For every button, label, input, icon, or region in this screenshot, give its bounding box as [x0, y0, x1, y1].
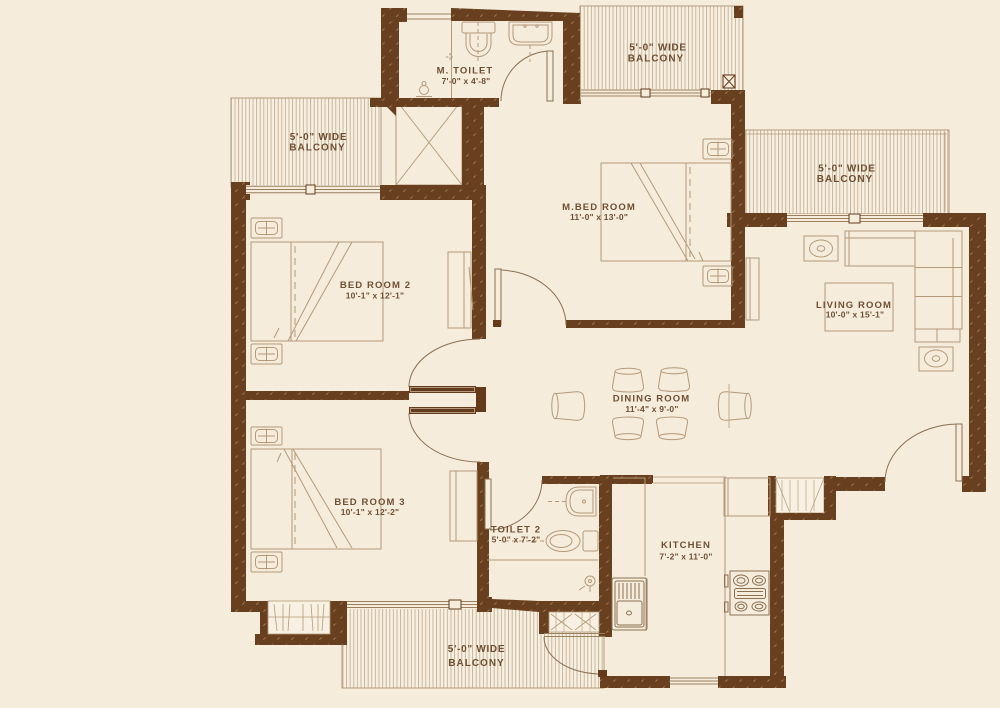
svg-text:BALCONY: BALCONY: [448, 658, 504, 669]
svg-text:BALCONY: BALCONY: [289, 143, 345, 154]
svg-text:5'-0" WIDE: 5'-0" WIDE: [448, 644, 505, 655]
svg-text:5'-0" WIDE: 5'-0" WIDE: [818, 164, 875, 175]
svg-text:KITCHEN: KITCHEN: [661, 540, 711, 551]
svg-text:11'-0" x 13'-0": 11'-0" x 13'-0": [570, 212, 628, 222]
svg-text:7'-2" x 11'-0": 7'-2" x 11'-0": [659, 552, 712, 562]
svg-text:BED ROOM 2: BED ROOM 2: [340, 280, 411, 291]
svg-text:M. TOILET: M. TOILET: [437, 66, 494, 77]
svg-text:5'-0" WIDE: 5'-0" WIDE: [290, 132, 347, 143]
svg-text:5'-0" WIDE: 5'-0" WIDE: [629, 43, 686, 54]
svg-text:10'-1" x 12'-1": 10'-1" x 12'-1": [346, 291, 405, 301]
svg-text:11'-4" x 9'-0": 11'-4" x 9'-0": [625, 404, 678, 414]
svg-text:10'-1" x 12'-2": 10'-1" x 12'-2": [341, 507, 400, 517]
svg-text:10'-0" x 15'-1": 10'-0" x 15'-1": [826, 310, 885, 320]
svg-text:DINING ROOM: DINING ROOM: [613, 394, 691, 405]
svg-text:7'-0" x 4'-8": 7'-0" x 4'-8": [442, 76, 491, 86]
svg-text:BALCONY: BALCONY: [817, 174, 873, 185]
svg-text:BALCONY: BALCONY: [628, 54, 684, 65]
svg-text:5'-0" x 7'-2": 5'-0" x 7'-2": [492, 535, 541, 545]
